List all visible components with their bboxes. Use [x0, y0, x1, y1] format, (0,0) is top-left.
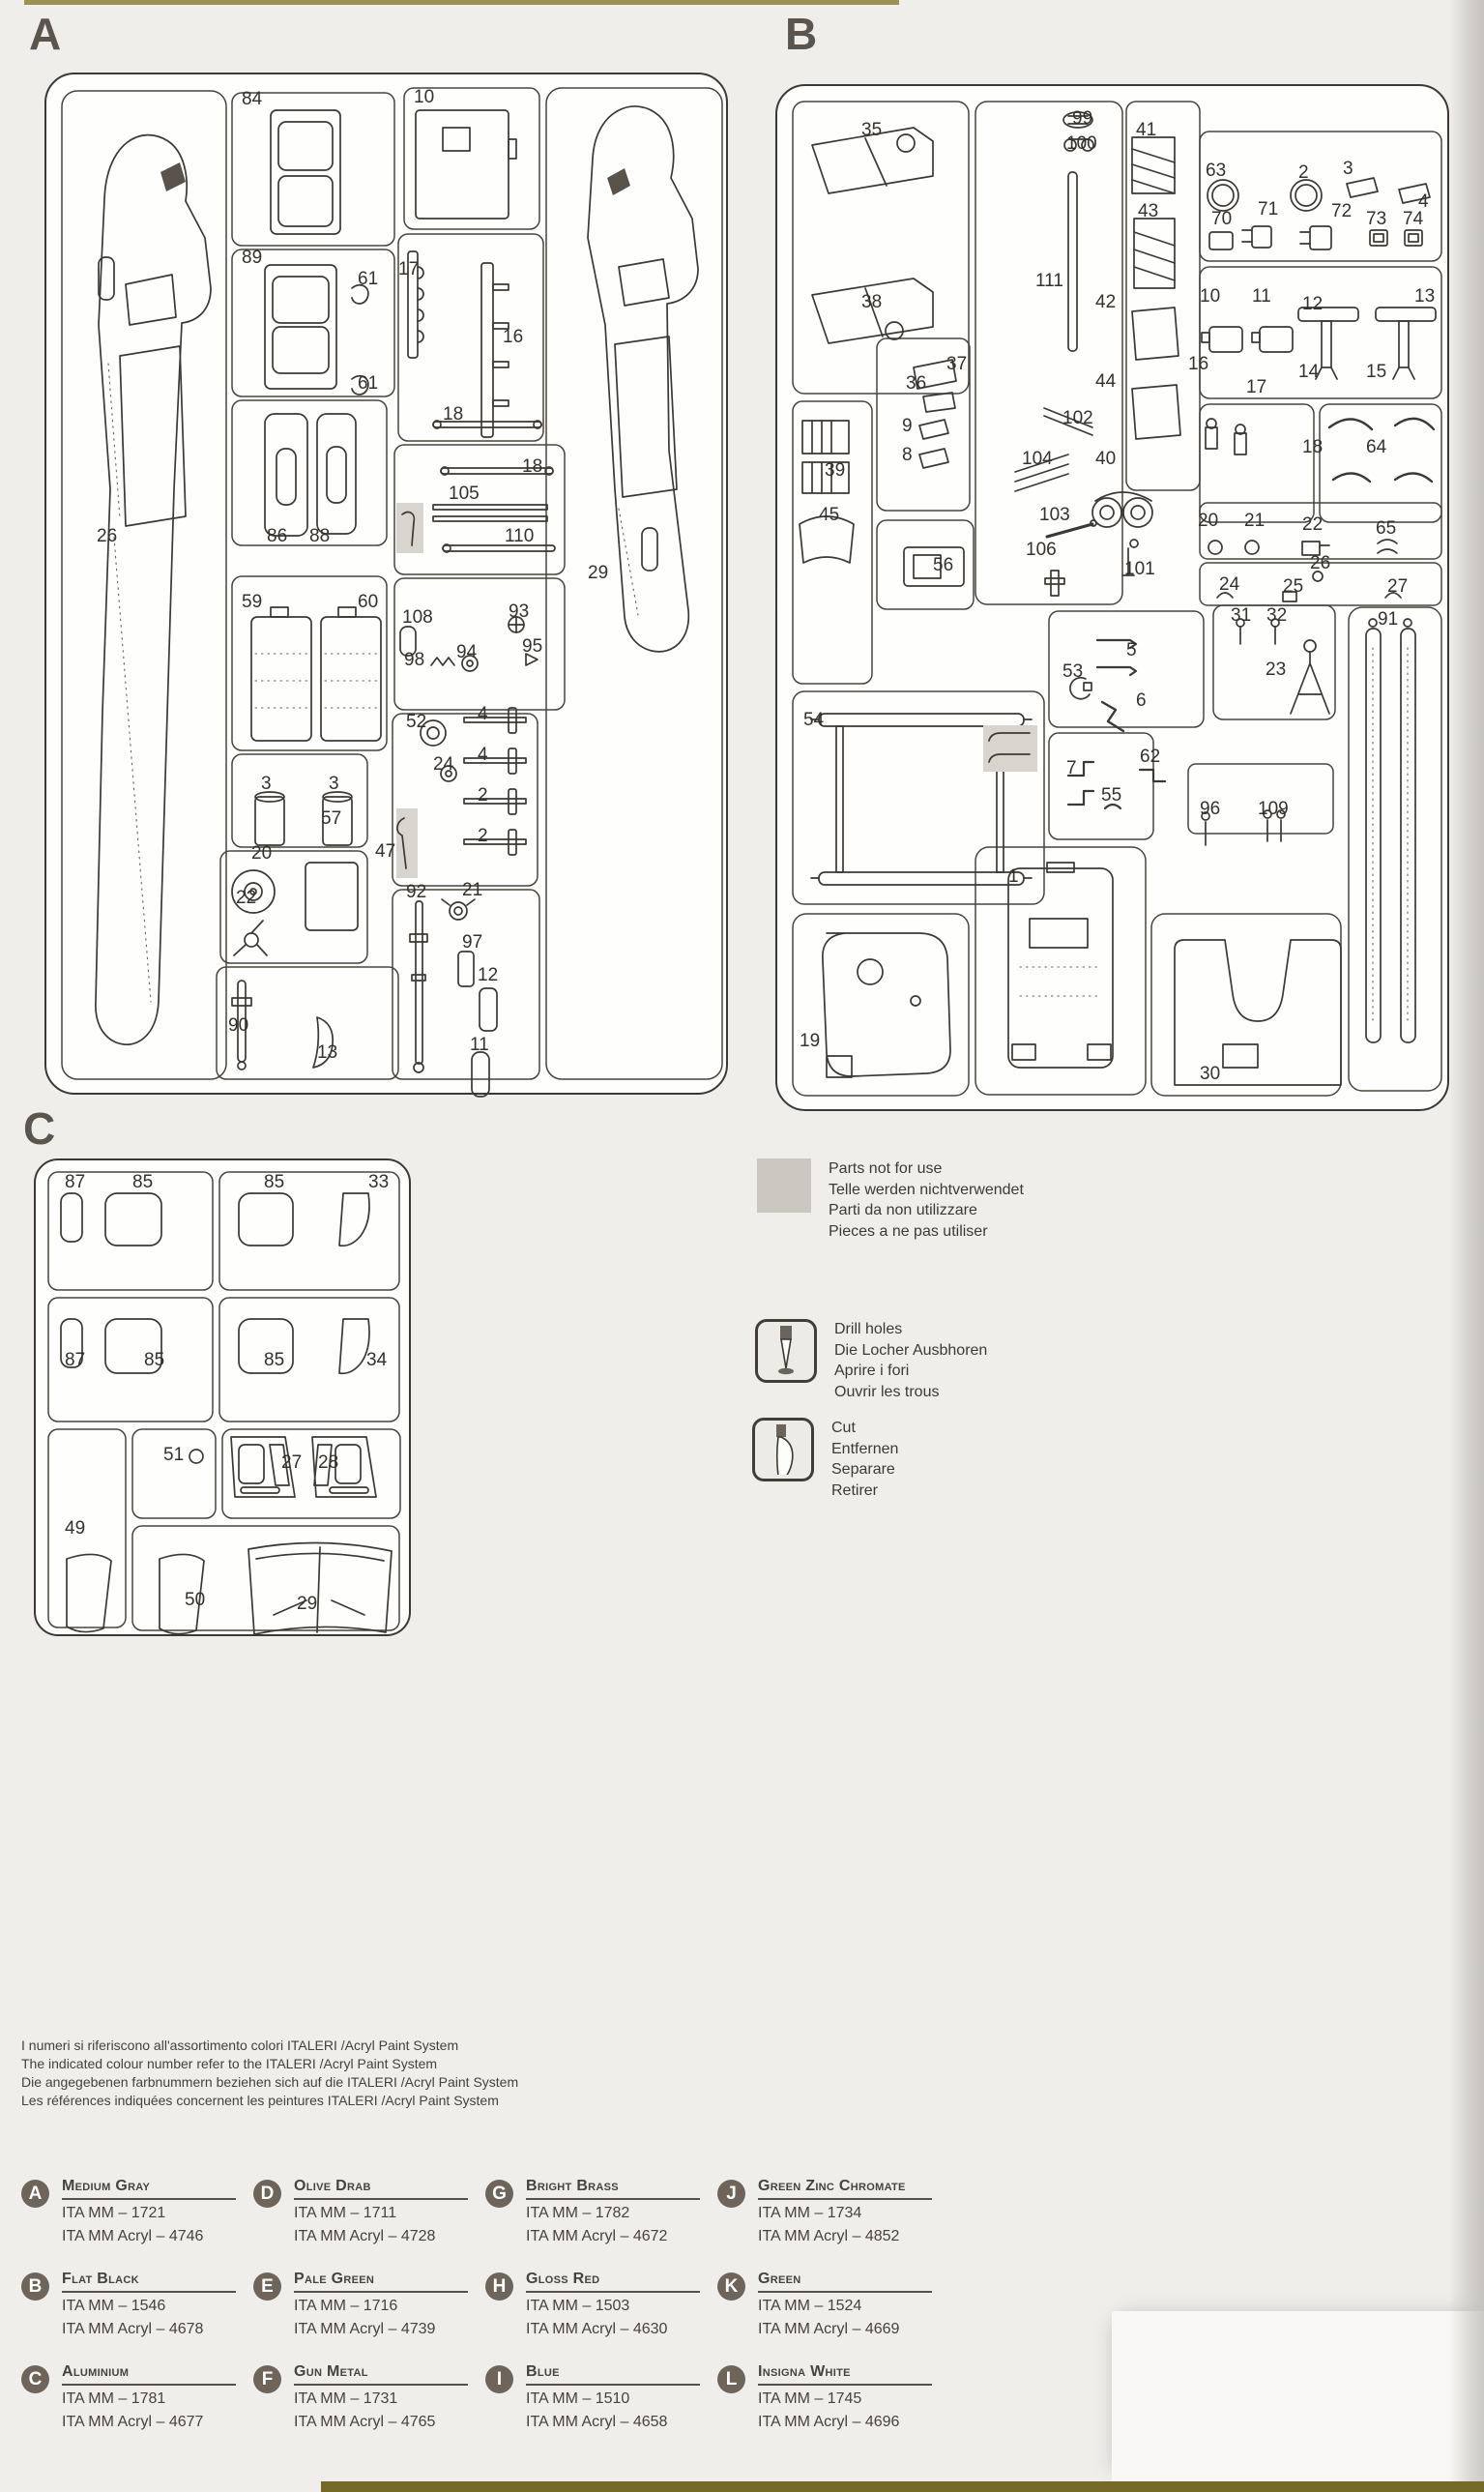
part-number-label: 85: [264, 1350, 284, 1370]
paint-code-mm: ITA MM – 1781: [62, 2389, 236, 2409]
part-number-label: 105: [449, 484, 480, 504]
legend-line: Die Locher Ausbhoren: [834, 1340, 987, 1362]
part-number-label: 2: [1298, 162, 1309, 183]
paint-chart-item: F Gun Metal ITA MM – 1731 ITA MM Acryl –…: [253, 2363, 485, 2456]
part-number-label: 110: [505, 526, 534, 546]
paint-code-mm: ITA MM – 1716: [294, 2297, 468, 2316]
paint-code-acryl: ITA MM Acryl – 4728: [294, 2227, 468, 2246]
part-number-label: 104: [1022, 449, 1053, 469]
legend-line: Pieces a ne pas utiliser: [829, 1221, 1024, 1243]
legend-cut: Cut Entfernen Separare Retirer: [752, 1418, 898, 1501]
part-number-label: 85: [144, 1350, 164, 1370]
part-number-label: 32: [1266, 605, 1287, 626]
paint-letter-badge: E: [253, 2272, 281, 2301]
paint-letter-badge: B: [21, 2272, 49, 2301]
part-number-label: 22: [236, 888, 256, 908]
part-number-label: 6: [1136, 690, 1147, 711]
part-number-label: 16: [503, 327, 523, 347]
paint-name: Blue: [526, 2363, 700, 2386]
part-number-label: 43: [1138, 201, 1158, 221]
sprue-c-panel: 8785853387858534512728495029: [24, 1112, 430, 1654]
part-number-label: 15: [1366, 362, 1386, 382]
part-number-label: 91: [1378, 609, 1398, 630]
legend-drill-holes: Drill holes Die Locher Ausbhoren Aprire …: [755, 1319, 987, 1402]
paint-letter-badge: A: [21, 2180, 49, 2208]
legend-line: Entfernen: [831, 1439, 898, 1460]
paint-name: Bright Brass: [526, 2178, 700, 2200]
part-number-label: 18: [443, 404, 463, 425]
note-line-de: Die angegebenen farbnummern beziehen sic…: [21, 2073, 524, 2092]
part-number-label: 62: [1140, 747, 1160, 767]
part-number-label: 27: [1387, 576, 1408, 597]
part-number-label: 19: [800, 1031, 820, 1051]
paint-chart: A Medium Gray ITA MM – 1721 ITA MM Acryl…: [21, 2178, 949, 2456]
part-number-label: 72: [1331, 201, 1352, 221]
note-line-it: I numeri si riferiscono all'assortimento…: [21, 2037, 524, 2055]
part-number-label: 103: [1039, 505, 1070, 525]
paint-chart-item: K Green ITA MM – 1524 ITA MM Acryl – 466…: [717, 2271, 949, 2363]
paint-code-mm: ITA MM – 1546: [62, 2297, 236, 2316]
page-bottom-edge: [321, 2481, 1484, 2492]
paint-code-mm: ITA MM – 1782: [526, 2204, 700, 2223]
part-number-label: 47: [375, 841, 395, 862]
part-number-label: 36: [906, 373, 926, 394]
paint-code-acryl: ITA MM Acryl – 4696: [758, 2413, 932, 2432]
paint-chart-item: G Bright Brass ITA MM – 1782 ITA MM Acry…: [485, 2178, 717, 2271]
part-number-label: 18: [522, 456, 542, 477]
paint-code-acryl: ITA MM Acryl – 4658: [526, 2413, 700, 2432]
part-number-label: 95: [522, 636, 542, 657]
not-for-use-swatch-icon: [757, 1158, 811, 1213]
paint-chart-item: E Pale Green ITA MM – 1716 ITA MM Acryl …: [253, 2271, 485, 2363]
part-number-label: 17: [398, 259, 419, 279]
paint-code-acryl: ITA MM Acryl – 4852: [758, 2227, 932, 2246]
paint-name: Aluminium: [62, 2363, 236, 2386]
part-number-label: 73: [1366, 209, 1386, 229]
part-number-label: 11: [1252, 286, 1271, 307]
knife-icon: [752, 1418, 814, 1481]
paint-chart-item: L Insigna White ITA MM – 1745 ITA MM Acr…: [717, 2363, 949, 2456]
paint-code-acryl: ITA MM Acryl – 4672: [526, 2227, 700, 2246]
part-number-label: 97: [462, 932, 482, 953]
part-number-label: 2: [478, 826, 488, 846]
paint-code-acryl: ITA MM Acryl – 4677: [62, 2413, 236, 2432]
legend-line: Cut: [831, 1418, 898, 1439]
paint-code-acryl: ITA MM Acryl – 4630: [526, 2320, 700, 2339]
part-number-label: 37: [946, 354, 967, 374]
paint-letter-badge: H: [485, 2272, 513, 2301]
part-number-label: 11: [470, 1035, 489, 1055]
part-number-label: 2: [478, 785, 488, 806]
part-number-label: 4: [478, 745, 488, 765]
paint-name: Pale Green: [294, 2271, 468, 2293]
paint-code-acryl: ITA MM Acryl – 4746: [62, 2227, 236, 2246]
paint-code-acryl: ITA MM Acryl – 4678: [62, 2320, 236, 2339]
paint-letter-badge: F: [253, 2365, 281, 2393]
part-number-label: 16: [1188, 354, 1208, 374]
part-number-label: 106: [1026, 540, 1057, 560]
part-number-label: 63: [1206, 161, 1226, 181]
legend-line: Aprire i fori: [834, 1361, 987, 1382]
part-number-label: 24: [1219, 574, 1240, 595]
part-number-label: 8: [902, 445, 913, 465]
paint-code-mm: ITA MM – 1731: [294, 2389, 468, 2409]
part-number-label: 92: [406, 882, 426, 902]
part-number-label: 89: [242, 248, 262, 268]
part-number-label: 45: [819, 505, 839, 525]
part-number-label: 35: [861, 120, 882, 140]
part-number-label: 94: [456, 642, 478, 662]
part-number-label: 13: [317, 1042, 337, 1063]
part-number-label: 26: [1310, 553, 1330, 573]
part-number-label: 101: [1124, 559, 1155, 579]
paint-name: Green Zinc Chromate: [758, 2178, 932, 2200]
paint-chart-item: J Green Zinc Chromate ITA MM – 1734 ITA …: [717, 2178, 949, 2271]
sprue-b-diagram: 3599100416323470717273744338111421011121…: [769, 48, 1457, 1122]
part-number-label: 31: [1231, 605, 1251, 626]
part-number-label: 25: [1283, 576, 1303, 597]
part-number-label: 40: [1095, 449, 1116, 469]
paint-code-mm: ITA MM – 1745: [758, 2389, 932, 2409]
part-number-label: 57: [321, 808, 341, 829]
paint-chart-item: B Flat Black ITA MM – 1546 ITA MM Acryl …: [21, 2271, 253, 2363]
page-top-edge: [24, 0, 899, 5]
part-number-label: 27: [281, 1452, 302, 1473]
part-number-label: 90: [228, 1015, 248, 1036]
part-number-label: 100: [1066, 133, 1097, 154]
part-number-label: 7: [1066, 758, 1077, 778]
paint-name: Gun Metal: [294, 2363, 468, 2386]
part-number-label: 71: [1258, 199, 1278, 220]
legend-parts-not-for-use: Parts not for use Telle werden nichtverw…: [757, 1158, 1024, 1242]
part-number-label: 99: [1072, 108, 1092, 129]
paint-code-mm: ITA MM – 1711: [294, 2204, 468, 2223]
paint-name: Medium Gray: [62, 2178, 236, 2200]
part-number-label: 84: [242, 89, 263, 109]
part-number-label: 18: [1302, 437, 1323, 457]
paint-name: Green: [758, 2271, 932, 2293]
paint-letter-badge: C: [21, 2365, 49, 2393]
part-number-label: 64: [1366, 437, 1387, 457]
part-number-label: 22: [1302, 514, 1323, 535]
part-number-label: 12: [1302, 294, 1323, 314]
paint-name: Flat Black: [62, 2271, 236, 2293]
part-number-label: 39: [825, 460, 845, 481]
part-number-label: 38: [861, 292, 882, 312]
part-number-label: 61: [358, 373, 378, 394]
part-number-label: 21: [462, 880, 482, 900]
part-number-label: 96: [1200, 799, 1220, 819]
paint-chart-item: D Olive Drab ITA MM – 1711 ITA MM Acryl …: [253, 2178, 485, 2271]
part-number-label: 87: [65, 1172, 85, 1192]
paint-name: Gloss Red: [526, 2271, 700, 2293]
sprue-a-panel: 8410896117166118181051102686882959601089…: [27, 35, 742, 1108]
drill-icon: [755, 1319, 817, 1383]
part-number-label: 13: [1414, 286, 1435, 307]
part-number-label: 3: [261, 774, 272, 794]
part-number-label: 85: [264, 1172, 284, 1192]
paint-code-mm: ITA MM – 1503: [526, 2297, 700, 2316]
part-number-label: 3: [1343, 159, 1353, 179]
part-number-label: 70: [1211, 209, 1232, 229]
part-number-label: 5: [1126, 640, 1137, 660]
legend-line: Retirer: [831, 1481, 898, 1502]
paint-code-acryl: ITA MM Acryl – 4739: [294, 2320, 468, 2339]
part-number-label: 51: [163, 1445, 184, 1465]
part-number-label: 17: [1246, 377, 1266, 397]
legend-line: Parts not for use: [829, 1158, 1024, 1180]
paint-reference-notes: I numeri si riferiscono all'assortimento…: [21, 2037, 524, 2110]
part-number-label: 34: [366, 1350, 388, 1370]
part-number-label: 9: [902, 416, 913, 436]
part-number-label: 50: [185, 1590, 205, 1610]
part-number-label: 10: [1200, 286, 1220, 307]
note-line-en: The indicated colour number refer to the…: [21, 2055, 524, 2073]
legend-line: Ouvrir les trous: [834, 1382, 987, 1403]
part-number-label: 20: [1198, 511, 1218, 531]
sprue-b-panel: 3599100416323470717273744338111421011121…: [769, 48, 1457, 1122]
part-number-label: 93: [509, 601, 529, 622]
part-number-label: 111: [1035, 271, 1063, 291]
sprue-a-diagram: 8410896117166118181051102686882959601089…: [27, 35, 742, 1108]
paint-code-mm: ITA MM – 1734: [758, 2204, 932, 2223]
part-number-label: 24: [433, 754, 454, 775]
part-number-label: 10: [414, 87, 434, 107]
part-number-label: 88: [309, 526, 330, 546]
part-number-label: 20: [251, 843, 272, 864]
part-number-label: 52: [406, 712, 426, 732]
legend-line: Separare: [831, 1459, 898, 1481]
part-number-label: 60: [358, 592, 378, 612]
paint-code-mm: ITA MM – 1524: [758, 2297, 932, 2316]
part-number-label: 29: [297, 1594, 317, 1614]
part-number-label: 21: [1244, 511, 1265, 531]
under-page-corner: [1112, 2311, 1484, 2481]
instruction-sheet-page: A B C: [0, 0, 1484, 2492]
paint-code-mm: ITA MM – 1721: [62, 2204, 236, 2223]
paint-letter-badge: I: [485, 2365, 513, 2393]
paint-letter-badge: G: [485, 2180, 513, 2208]
part-number-label: 14: [1298, 362, 1320, 382]
paint-code-acryl: ITA MM Acryl – 4765: [294, 2413, 468, 2432]
part-number-label: 108: [402, 607, 433, 628]
part-number-label: 56: [933, 555, 953, 575]
part-number-label: 41: [1136, 120, 1156, 140]
paint-letter-badge: J: [717, 2180, 745, 2208]
part-number-label: 86: [267, 526, 287, 546]
part-number-label: 29: [588, 563, 608, 583]
part-number-label: 98: [404, 650, 424, 670]
part-number-label: 26: [97, 526, 117, 546]
part-number-label: 85: [132, 1172, 153, 1192]
legend-line: Drill holes: [834, 1319, 987, 1340]
part-number-label: 28: [318, 1452, 338, 1473]
paint-chart-item: H Gloss Red ITA MM – 1503 ITA MM Acryl –…: [485, 2271, 717, 2363]
part-number-label: 42: [1095, 292, 1116, 312]
part-number-label: 49: [65, 1518, 85, 1539]
part-number-label: 61: [358, 269, 378, 289]
paint-code-acryl: ITA MM Acryl – 4669: [758, 2320, 932, 2339]
paint-letter-badge: K: [717, 2272, 745, 2301]
part-number-label: 109: [1258, 799, 1289, 819]
part-number-label: 4: [478, 704, 488, 724]
paint-code-mm: ITA MM – 1510: [526, 2389, 700, 2409]
part-number-label: 1: [1008, 866, 1019, 887]
part-number-label: 102: [1062, 408, 1093, 428]
part-number-label: 87: [65, 1350, 85, 1370]
paint-letter-badge: D: [253, 2180, 281, 2208]
note-line-fr: Les références indiquées concernent les …: [21, 2092, 524, 2110]
part-number-label: 3: [329, 774, 339, 794]
part-number-label: 44: [1095, 371, 1117, 392]
paint-chart-item: I Blue ITA MM – 1510 ITA MM Acryl – 4658: [485, 2363, 717, 2456]
part-number-label: 30: [1200, 1064, 1220, 1084]
paint-name: Insigna White: [758, 2363, 932, 2386]
part-number-label: 55: [1101, 785, 1121, 806]
paint-name: Olive Drab: [294, 2178, 468, 2200]
part-number-label: 33: [368, 1172, 389, 1192]
paint-letter-badge: L: [717, 2365, 745, 2393]
legend-line: Parti da non utilizzare: [829, 1200, 1024, 1221]
part-number-label: 23: [1266, 660, 1286, 680]
part-number-label: 65: [1376, 518, 1396, 539]
paint-chart-item: A Medium Gray ITA MM – 1721 ITA MM Acryl…: [21, 2178, 253, 2271]
paint-chart-item: C Aluminium ITA MM – 1781 ITA MM Acryl –…: [21, 2363, 253, 2456]
part-number-label: 74: [1403, 209, 1424, 229]
legend-line: Telle werden nichtverwendet: [829, 1180, 1024, 1201]
part-number-label: 53: [1062, 661, 1083, 682]
part-number-label: 12: [478, 965, 498, 985]
sprue-c-diagram: 8785853387858534512728495029: [24, 1112, 430, 1654]
part-number-label: 54: [803, 710, 825, 730]
part-number-label: 59: [242, 592, 262, 612]
